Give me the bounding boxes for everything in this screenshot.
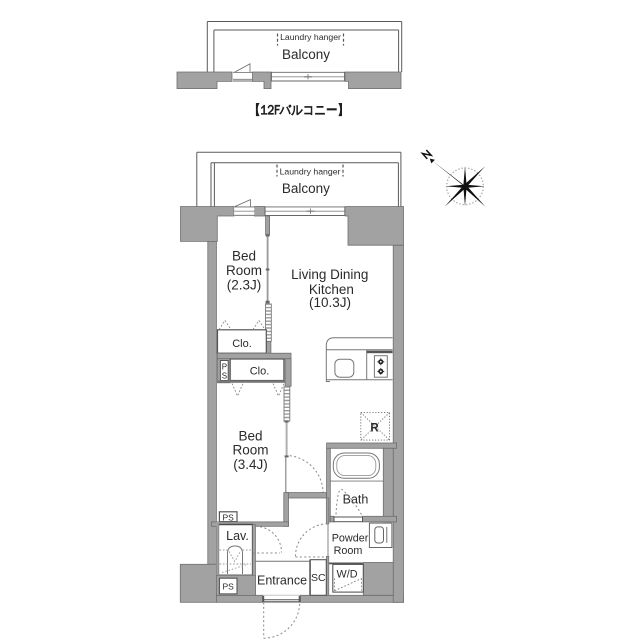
svg-text:Bed: Bed	[232, 249, 256, 264]
svg-text:Balcony: Balcony	[282, 47, 330, 62]
svg-text:(3.4J): (3.4J)	[233, 457, 268, 472]
svg-text:Clo.: Clo.	[250, 366, 270, 378]
svg-text:Room: Room	[226, 263, 262, 278]
svg-text:Laundry hanger: Laundry hanger	[280, 166, 341, 176]
svg-text:W/D: W/D	[337, 569, 358, 581]
svg-text:Bath: Bath	[343, 493, 369, 507]
svg-text:S: S	[222, 372, 227, 381]
svg-text:SC: SC	[311, 572, 326, 584]
svg-text:R: R	[370, 423, 379, 435]
svg-text:Clo.: Clo.	[232, 338, 252, 350]
svg-text:Lav.: Lav.	[226, 529, 249, 543]
svg-text:Bed: Bed	[238, 429, 262, 444]
svg-text:Powder: Powder	[332, 533, 369, 545]
svg-text:(2.3J): (2.3J)	[227, 278, 262, 293]
svg-text:P: P	[222, 363, 227, 372]
svg-text:Entrance: Entrance	[257, 574, 307, 588]
svg-text:Living Dining: Living Dining	[291, 267, 368, 282]
svg-text:PS: PS	[223, 512, 235, 522]
svg-text:Balcony: Balcony	[282, 181, 330, 196]
svg-text:Laundry hanger: Laundry hanger	[280, 32, 341, 42]
svg-text:Room: Room	[334, 545, 363, 557]
svg-text:PS: PS	[223, 581, 235, 591]
svg-text:Room: Room	[232, 443, 268, 458]
svg-text:(10.3J): (10.3J)	[309, 295, 351, 310]
